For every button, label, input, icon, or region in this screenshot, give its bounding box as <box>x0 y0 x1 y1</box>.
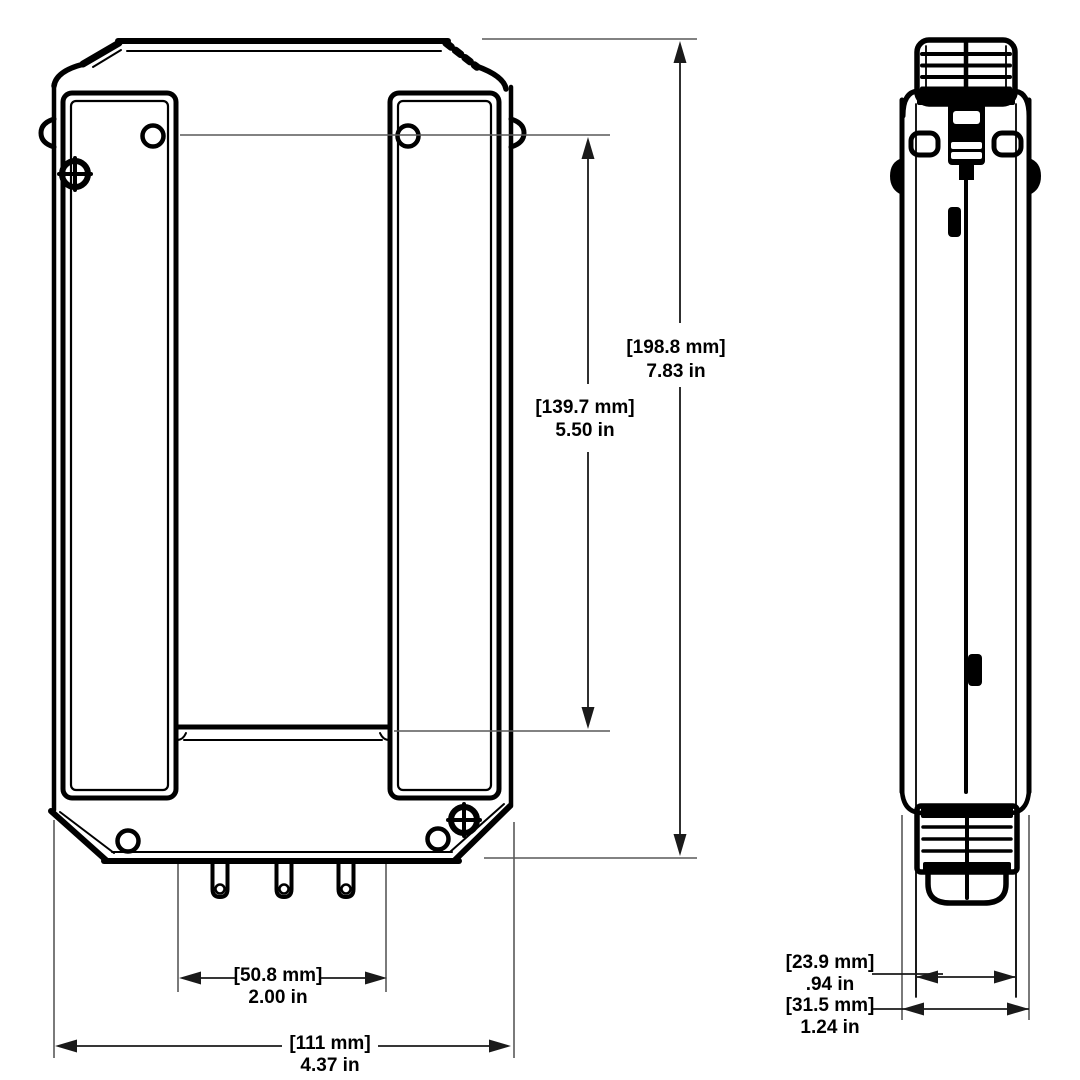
mounting-hole-bottom-right <box>428 829 449 850</box>
side-top-connector <box>917 40 1015 105</box>
overall-width-imperial-label: 4.37 in <box>300 1055 359 1076</box>
overall-width-metric-label: [111 mm] <box>289 1033 370 1054</box>
lower-slot-metric-label: [50.8 mm] <box>234 965 323 986</box>
side-latch-slot-left <box>911 133 938 155</box>
side-left-tab <box>890 158 902 195</box>
side-right-tab <box>1029 158 1041 195</box>
terminal-prongs <box>213 861 354 897</box>
side-latch-slot-right <box>994 133 1021 155</box>
front-body-outline <box>51 84 511 861</box>
bracket-rail-right <box>390 93 499 798</box>
side-overall-depth-imperial-label: 1.24 in <box>800 1017 859 1038</box>
lower-slot-imperial-label: 2.00 in <box>248 987 307 1008</box>
overall-height-imperial-label: 7.83 in <box>646 361 705 382</box>
mounting-hole-top-left <box>143 126 164 147</box>
dimension-overall-width: [111 mm] 4.37 in <box>55 1033 511 1076</box>
side-slot-lower <box>968 654 982 686</box>
mounting-span-metric-label: [139.7 mm] <box>535 397 634 418</box>
side-clamp-detail <box>911 103 1021 180</box>
screw-bottom-right <box>448 804 480 836</box>
mounting-hole-top-right <box>398 126 419 147</box>
extension-lines <box>54 39 1029 1058</box>
side-body-width-imperial-label: .94 in <box>806 974 855 995</box>
overall-height-metric-label: [198.8 mm] <box>626 337 725 358</box>
side-bottom-connector <box>902 790 1029 903</box>
side-overall-depth-metric-label: [31.5 mm] <box>786 995 875 1016</box>
mounting-span-imperial-label: 5.50 in <box>555 420 614 441</box>
dimension-side-body-width: [23.9 mm] .94 in <box>786 952 1016 995</box>
dimension-annotations: [198.8 mm] 7.83 in [139.7 mm] 5.50 in [5… <box>54 39 1029 1076</box>
dimension-overall-height: [198.8 mm] 7.83 in <box>626 41 725 856</box>
dimension-drawing-canvas: [198.8 mm] 7.83 in [139.7 mm] 5.50 in [5… <box>0 0 1080 1080</box>
dimension-side-overall-depth: [31.5 mm] 1.24 in <box>786 995 1029 1038</box>
dimension-mounting-span: [139.7 mm] 5.50 in <box>535 137 634 729</box>
screw-top-left <box>59 158 91 190</box>
side-body-width-metric-label: [23.9 mm] <box>786 952 875 973</box>
front-top-cover <box>54 41 506 89</box>
dimension-lower-slot-width: [50.8 mm] 2.00 in <box>179 965 387 1008</box>
technical-drawing: [198.8 mm] 7.83 in [139.7 mm] 5.50 in [5… <box>0 0 1080 1080</box>
bracket-crossbar <box>176 727 390 740</box>
bracket-rail-left <box>63 93 176 798</box>
side-view <box>890 40 1041 997</box>
side-slot-upper <box>948 207 961 237</box>
front-view <box>41 41 524 897</box>
mounting-hole-bottom-left <box>118 831 139 852</box>
cover-hatched-corner <box>446 43 477 67</box>
